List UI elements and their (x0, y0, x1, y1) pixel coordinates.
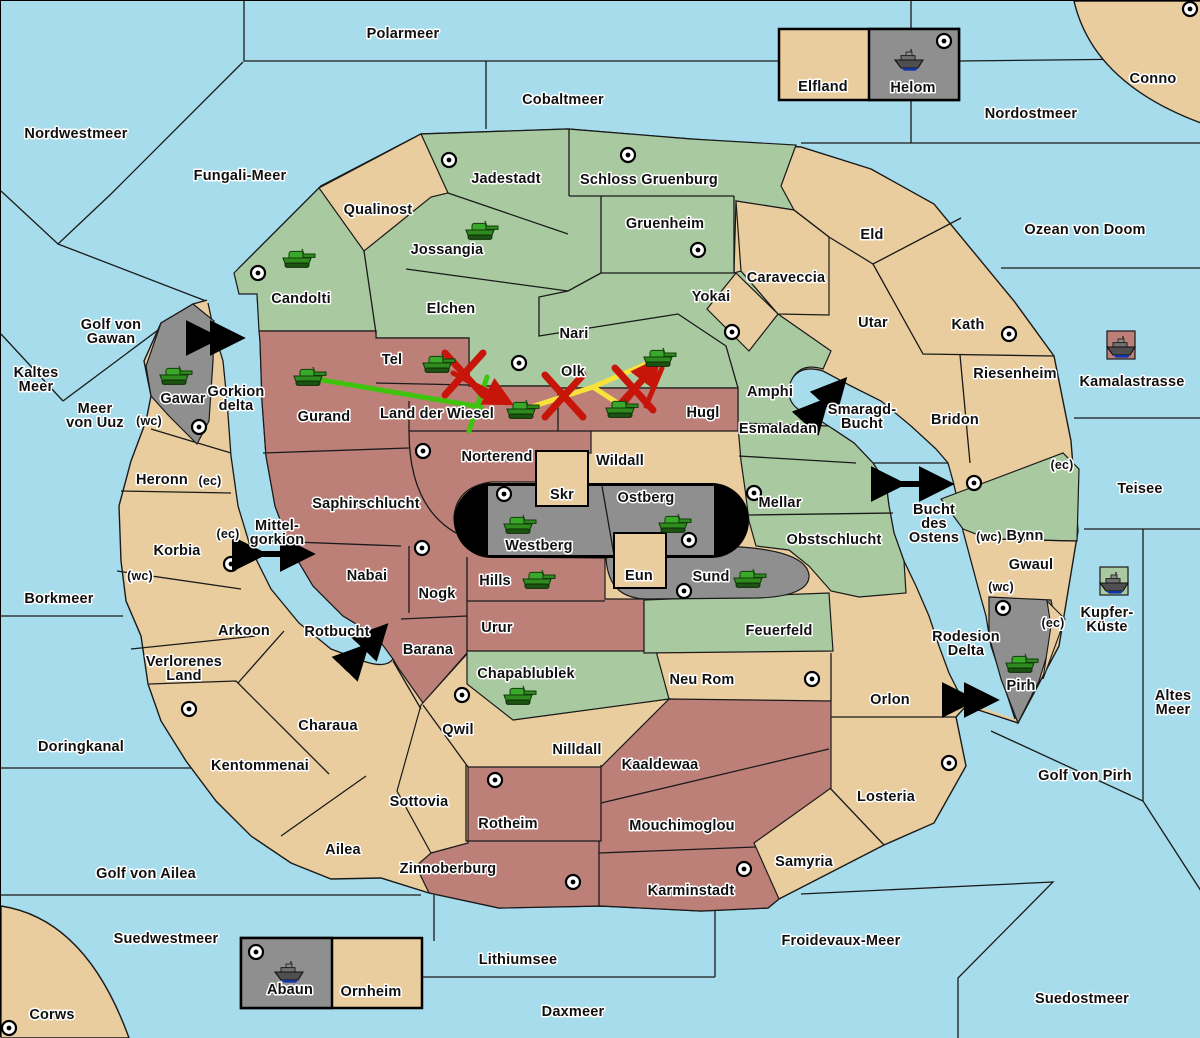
label-barana[interactable]: Barana (403, 642, 454, 658)
label-rodesion-delta-line2[interactable]: Delta (948, 643, 985, 659)
label-nabai[interactable]: Nabai (347, 568, 388, 584)
label-wc-gwaul: (wc) (988, 580, 1014, 594)
fleet-kamalastrasse[interactable] (1107, 331, 1135, 359)
label-hugl[interactable]: Hugl (686, 405, 719, 421)
supply-center-candolti[interactable] (251, 266, 265, 280)
supply-center-schloss-gruenburg[interactable] (621, 148, 635, 162)
label-sund[interactable]: Sund (692, 569, 729, 585)
label-jossangia[interactable]: Jossangia (411, 242, 484, 258)
label-mittel-gorkion-line2[interactable]: gorkion (250, 532, 305, 548)
label-ec-heronn: (ec) (198, 474, 221, 488)
label-westberg[interactable]: Westberg (505, 538, 572, 554)
label-kupfer-kueste-line2[interactable]: Küste (1086, 619, 1127, 635)
supply-center-losteria[interactable] (942, 756, 956, 770)
supply-center-corws[interactable] (2, 1021, 16, 1035)
game-map: PolarmeerNordwestmeerFungali-MeerCobaltm… (0, 0, 1200, 1037)
label-cobaltmeer[interactable]: Cobaltmeer (522, 92, 604, 108)
label-saphirschlucht[interactable]: Saphirschlucht (312, 496, 420, 512)
label-land-der-wiesel[interactable]: Land der Wiesel (380, 406, 494, 422)
label-wc-korbia: (wc) (127, 569, 153, 583)
label-utar[interactable]: Utar (858, 315, 888, 331)
label-mellar[interactable]: Mellar (758, 495, 801, 511)
label-qualinost[interactable]: Qualinost (344, 202, 413, 218)
label-qwil[interactable]: Qwil (442, 722, 473, 738)
map-canvas[interactable]: PolarmeerNordwestmeerFungali-MeerCobaltm… (1, 1, 1200, 1038)
supply-center-qwil[interactable] (455, 688, 469, 702)
label-ec-gwaul: (ec) (1041, 616, 1064, 630)
label-amphi[interactable]: Amphi (747, 384, 793, 400)
label-fungali-meer[interactable]: Fungali-Meer (194, 168, 287, 184)
label-polarmeer[interactable]: Polarmeer (367, 26, 440, 42)
label-norterend[interactable]: Norterend (461, 449, 532, 465)
label-ornheim[interactable]: Ornheim (340, 984, 401, 1000)
label-conno[interactable]: Conno (1130, 71, 1177, 87)
label-heronn[interactable]: Heronn (136, 472, 188, 488)
label-schloss-gruenburg[interactable]: Schloss Gruenburg (580, 172, 718, 188)
supply-center-gruenheim[interactable] (691, 243, 705, 257)
label-neu-rom[interactable]: Neu Rom (669, 672, 734, 688)
supply-center-kentommenai[interactable] (182, 702, 196, 716)
supply-center-caraveccia[interactable] (725, 325, 739, 339)
supply-center-karminstadt[interactable] (737, 862, 751, 876)
label-esmaladan[interactable]: Esmaladan (739, 421, 817, 437)
label-bridon[interactable]: Bridon (931, 412, 979, 428)
label-wc-bynn: (wc) (976, 530, 1002, 544)
supply-center-westberg[interactable] (497, 487, 511, 501)
label-ailea[interactable]: Ailea (325, 842, 361, 858)
label-rotbucht[interactable]: Rotbucht (304, 624, 369, 640)
label-mouchimoglou[interactable]: Mouchimoglou (629, 818, 735, 834)
label-orlon[interactable]: Orlon (870, 692, 910, 708)
label-suedwestmeer[interactable]: Suedwestmeer (114, 931, 219, 947)
label-obstschlucht[interactable]: Obstschlucht (786, 532, 881, 548)
label-daxmeer[interactable]: Daxmeer (542, 1004, 605, 1020)
label-hills[interactable]: Hills (479, 573, 511, 589)
label-kaltes-meer-line2[interactable]: Meer (19, 379, 54, 395)
label-ec-korbia: (ec) (216, 527, 239, 541)
label-chapablublek[interactable]: Chapablublek (477, 666, 575, 682)
label-ostberg[interactable]: Ostberg (618, 490, 675, 506)
label-wc-gawar: (wc) (136, 414, 162, 428)
label-golf-von-pirh[interactable]: Golf von Pirh (1038, 768, 1132, 784)
label-rotheim[interactable]: Rotheim (478, 816, 537, 832)
label-froidevaux-meer[interactable]: Froidevaux-Meer (781, 933, 900, 949)
label-tel[interactable]: Tel (382, 352, 402, 368)
label-yokai[interactable]: Yokai (692, 289, 731, 305)
supply-center-rotheim[interactable] (488, 773, 502, 787)
label-korbia[interactable]: Korbia (153, 543, 201, 559)
supply-center-abaun[interactable] (249, 945, 263, 959)
supply-center-korbia[interactable] (224, 557, 238, 571)
label-candolti[interactable]: Candolti (271, 291, 331, 307)
label-doringkanal[interactable]: Doringkanal (38, 739, 124, 755)
label-feuerfeld[interactable]: Feuerfeld (745, 623, 812, 639)
label-kaaldewaa[interactable]: Kaaldewaa (622, 757, 699, 773)
label-nogk[interactable]: Nogk (418, 586, 456, 602)
label-jadestadt[interactable]: Jadestadt (471, 171, 541, 187)
supply-center-conno[interactable] (1183, 2, 1197, 16)
label-gruenheim[interactable]: Gruenheim (626, 216, 704, 232)
supply-center-ostberg[interactable] (682, 533, 696, 547)
supply-center-norterend[interactable] (416, 444, 430, 458)
label-smaragd-bucht-line2[interactable]: Bucht (841, 416, 883, 432)
label-charaua[interactable]: Charaua (298, 718, 358, 734)
label-abaun[interactable]: Abaun (267, 982, 313, 998)
label-meer-von-uuz-line2[interactable]: von Uuz (66, 415, 124, 431)
label-wildall[interactable]: Wildall (596, 453, 644, 469)
label-gawar[interactable]: Gawar (160, 391, 205, 407)
label-elchen[interactable]: Elchen (427, 301, 476, 317)
label-samyria[interactable]: Samyria (775, 854, 834, 870)
label-pirh[interactable]: Pirh (1007, 678, 1036, 694)
label-arkoon[interactable]: Arkoon (218, 623, 270, 639)
label-gorkion-delta-line2[interactable]: delta (219, 398, 255, 414)
label-urur[interactable]: Urur (481, 620, 513, 636)
label-elfland[interactable]: Elfland (798, 79, 848, 95)
label-kath[interactable]: Kath (951, 317, 984, 333)
fleet-kupfer-kueste[interactable] (1100, 567, 1128, 595)
label-skr[interactable]: Skr (550, 487, 574, 503)
supply-center-zinnoberburg[interactable] (566, 875, 580, 889)
label-nordostmeer[interactable]: Nordostmeer (985, 106, 1078, 122)
label-golf-von-gawan-line2[interactable]: Gawan (87, 331, 136, 347)
label-golf-von-ailea[interactable]: Golf von Ailea (96, 866, 196, 882)
supply-center-gawar[interactable] (192, 420, 206, 434)
label-helom[interactable]: Helom (890, 80, 935, 96)
supply-center-neu-rom[interactable] (805, 672, 819, 686)
supply-center-kath[interactable] (1002, 327, 1016, 341)
label-nari[interactable]: Nari (559, 326, 588, 342)
label-nilldall[interactable]: Nilldall (552, 742, 601, 758)
label-nordwestmeer[interactable]: Nordwestmeer (24, 126, 127, 142)
supply-center-helom[interactable] (937, 34, 951, 48)
label-eun[interactable]: Eun (625, 568, 653, 584)
label-ec-bynn: (ec) (1050, 458, 1073, 472)
label-caraveccia[interactable]: Caraveccia (747, 270, 826, 286)
supply-center-pirh[interactable] (996, 601, 1010, 615)
label-verlorenes-land-line2[interactable]: Land (166, 668, 201, 684)
label-sottovia[interactable]: Sottovia (390, 794, 450, 810)
supply-center-jadestadt[interactable] (442, 153, 456, 167)
supply-center-saphirschlucht[interactable] (415, 541, 429, 555)
label-suedostmeer[interactable]: Suedostmeer (1035, 991, 1129, 1007)
label-karminstadt[interactable]: Karminstadt (648, 883, 735, 899)
label-borkmeer[interactable]: Borkmeer (24, 591, 93, 607)
label-eld[interactable]: Eld (860, 227, 883, 243)
label-ozean-von-doom[interactable]: Ozean von Doom (1024, 222, 1145, 238)
label-kentommenai[interactable]: Kentommenai (211, 758, 309, 774)
label-corws[interactable]: Corws (29, 1007, 74, 1023)
label-bucht-des-ostens-line3[interactable]: Ostens (909, 530, 959, 546)
label-teisee[interactable]: Teisee (1117, 481, 1162, 497)
label-kamalastrasse[interactable]: Kamalastrasse (1080, 374, 1185, 390)
label-olk[interactable]: Olk (561, 364, 586, 380)
label-altes-meer-line2[interactable]: Meer (1156, 702, 1191, 718)
label-riesenheim[interactable]: Riesenheim (973, 366, 1056, 382)
label-gurand[interactable]: Gurand (298, 409, 351, 425)
label-losteria[interactable]: Losteria (857, 789, 916, 805)
label-lithiumsee[interactable]: Lithiumsee (479, 952, 558, 968)
label-gwaul[interactable]: Gwaul (1009, 557, 1054, 573)
supply-center-tel[interactable] (512, 356, 526, 370)
label-bynn[interactable]: Bynn (1006, 528, 1043, 544)
supply-center-sund[interactable] (677, 584, 691, 598)
label-zinnoberburg[interactable]: Zinnoberburg (400, 861, 497, 877)
supply-center-bridon[interactable] (967, 476, 981, 490)
